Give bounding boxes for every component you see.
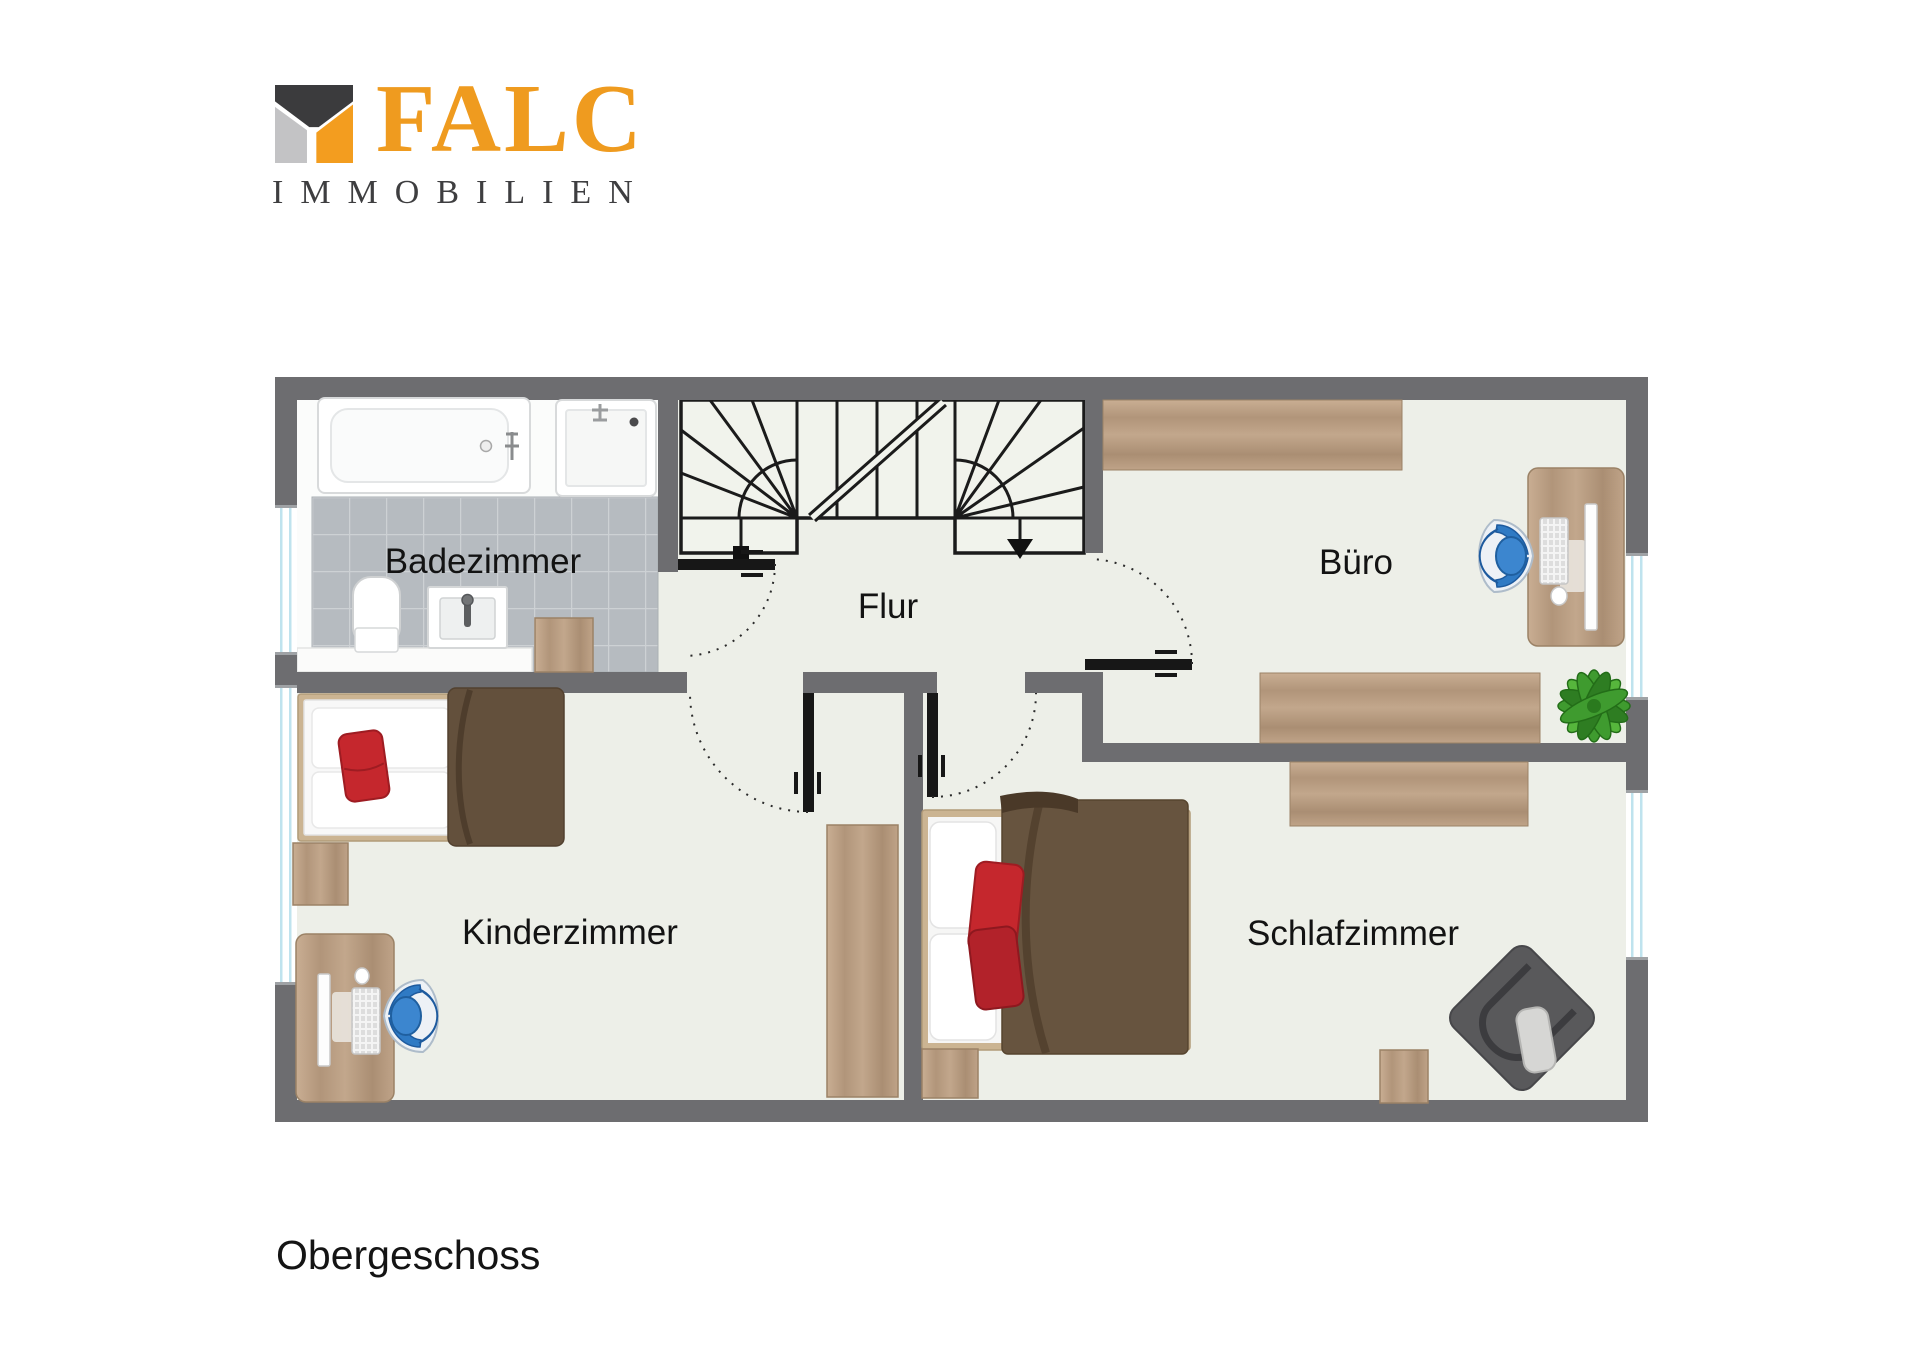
wall-right xyxy=(1626,377,1648,1122)
mouse xyxy=(355,968,369,984)
bathtub xyxy=(318,398,530,493)
red-pillow xyxy=(337,729,390,802)
wall-buero-schlaf xyxy=(1082,743,1626,762)
room-label-flur: Flur xyxy=(858,587,919,626)
keyboard xyxy=(1540,518,1568,584)
bath-cabinet xyxy=(535,618,593,672)
wall-flur-stub xyxy=(1025,672,1085,693)
window-kinderzimmer xyxy=(275,685,297,985)
window-badezimmer xyxy=(275,505,297,655)
toilet xyxy=(353,577,400,652)
sink xyxy=(428,587,507,648)
monitor xyxy=(1585,504,1597,630)
floorplan-drawing: Badezimmer Flur Büro Kinderzimmer Schlaf… xyxy=(0,0,1920,1357)
red-pillow xyxy=(967,925,1024,1010)
buero-desk xyxy=(1528,468,1624,646)
floorplan-page: FALC IMMOBILIEN xyxy=(0,0,1920,1357)
single-bed xyxy=(298,688,564,846)
double-bed xyxy=(922,792,1190,1054)
schlaf-sideboard xyxy=(1290,762,1528,826)
wall-kinder-top-b xyxy=(803,672,937,693)
room-label-schlafzimmer: Schlafzimmer xyxy=(1247,914,1459,953)
schlaf-dresser-left xyxy=(922,1049,978,1098)
kinder-desk xyxy=(296,934,394,1102)
window-buero xyxy=(1626,553,1648,700)
wall-top xyxy=(275,377,1648,400)
wall-bottom xyxy=(275,1100,1648,1122)
room-label-kinderzimmer: Kinderzimmer xyxy=(462,913,678,952)
buero-sideboard-top xyxy=(1103,400,1402,470)
kinder-nightstand xyxy=(293,843,348,905)
wall-bad-right xyxy=(658,398,678,572)
mouse xyxy=(1551,587,1567,605)
window-schlafzimmer xyxy=(1626,790,1648,960)
buero-sideboard-bottom xyxy=(1260,673,1540,743)
wall-kinder-schlaf xyxy=(904,693,923,1100)
kinder-wardrobe xyxy=(827,825,898,1097)
room-label-badezimmer: Badezimmer xyxy=(385,542,582,581)
floor-title: Obergeschoss xyxy=(276,1232,540,1279)
keyboard xyxy=(352,988,380,1054)
schlaf-dresser-right xyxy=(1380,1050,1428,1103)
monitor xyxy=(318,974,330,1066)
room-label-buero: Büro xyxy=(1319,543,1393,582)
wall-flur-buero xyxy=(1085,398,1103,553)
shower xyxy=(556,400,656,496)
